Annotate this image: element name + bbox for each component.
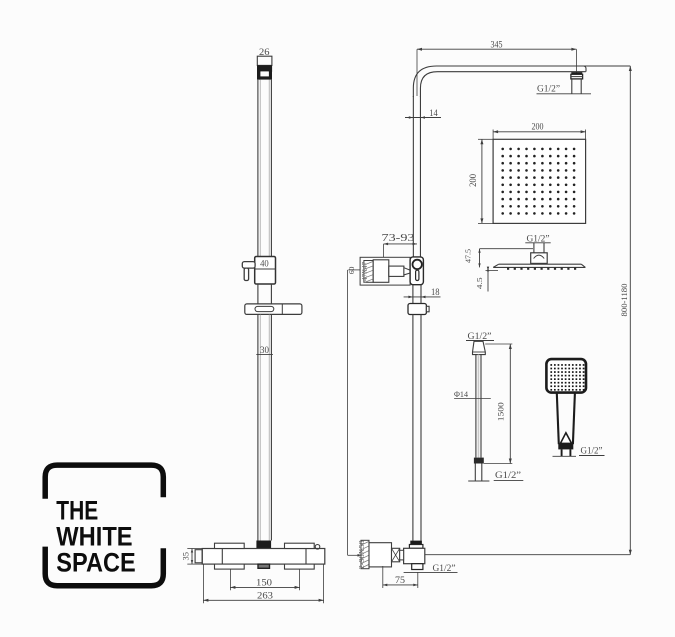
svg-text:800-1180: 800-1180 [619,284,629,317]
svg-text:G1/2”: G1/2” [468,331,492,341]
svg-text:G1/2”: G1/2” [495,470,521,480]
svg-text:G1/2”: G1/2” [537,84,560,94]
svg-text:200: 200 [469,174,479,187]
svg-text:G1/2”: G1/2” [527,234,550,244]
svg-text:14: 14 [429,108,438,118]
svg-text:263: 263 [257,591,273,601]
svg-text:2-98X58: 2-98X58 [357,540,366,569]
svg-text:18: 18 [431,287,440,297]
svg-text:40: 40 [260,259,269,269]
svg-text:1500: 1500 [495,402,505,421]
svg-text:G1/2”: G1/2” [581,445,603,455]
svg-text:47.5: 47.5 [463,249,472,263]
svg-text:150: 150 [256,579,272,589]
svg-text:SPACE: SPACE [56,548,135,578]
svg-text:G1/2”: G1/2” [433,563,456,573]
svg-text:75: 75 [395,576,405,586]
svg-text:73-93: 73-93 [382,233,415,244]
svg-text:200: 200 [532,123,544,133]
svg-text:47X47: 47X47 [360,262,369,281]
svg-text:Φ14: Φ14 [454,390,468,399]
svg-text:4.5: 4.5 [475,277,484,289]
svg-text:35: 35 [180,552,190,561]
